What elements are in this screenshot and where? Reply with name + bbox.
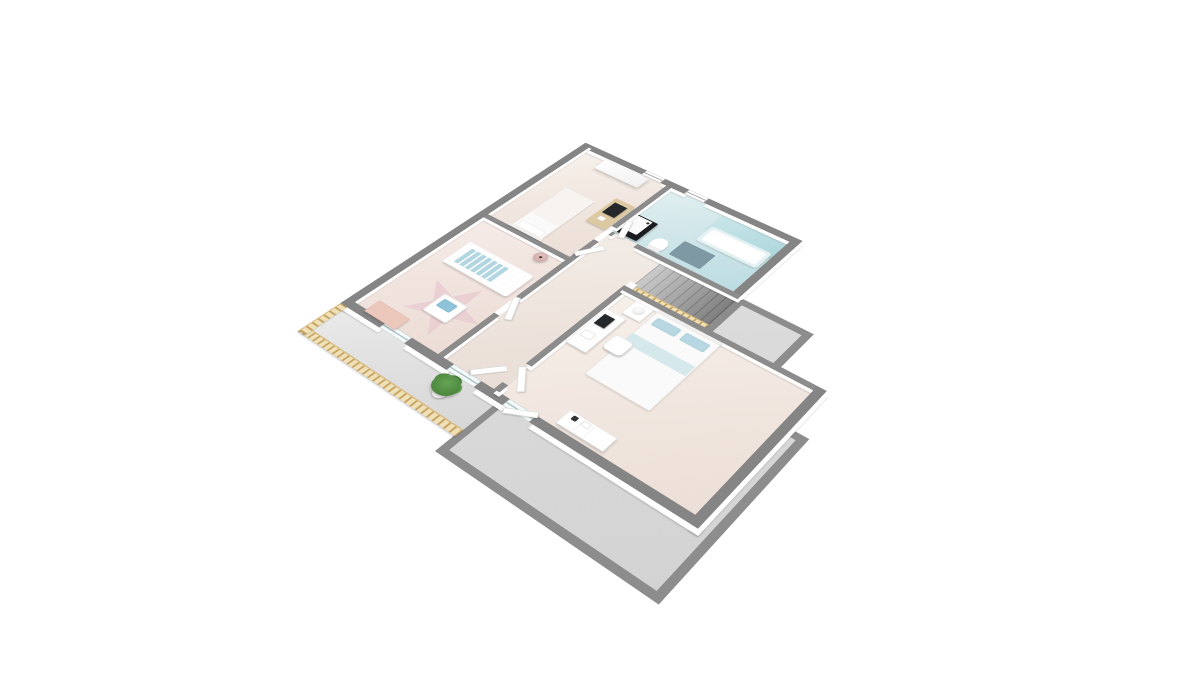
floor-plan-scene <box>0 0 1200 675</box>
wall-bathroom-south-1 <box>608 232 615 237</box>
floor-plan-3d-render <box>272 143 961 632</box>
bedroom2-door <box>516 367 526 392</box>
